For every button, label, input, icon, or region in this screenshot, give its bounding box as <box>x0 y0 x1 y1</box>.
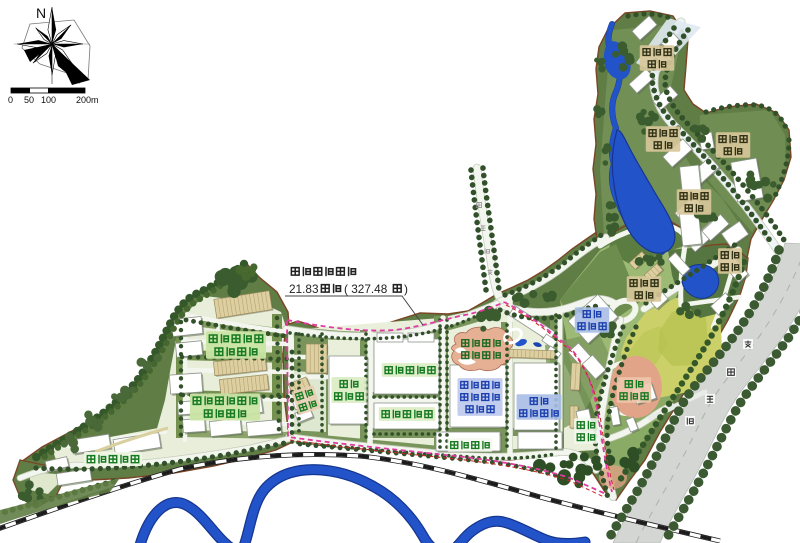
svg-text:0: 0 <box>8 95 13 105</box>
svg-text:21.83: 21.83 <box>289 282 319 296</box>
svg-text:50: 50 <box>24 95 34 105</box>
svg-text:( 327.48: ( 327.48 <box>344 282 388 296</box>
svg-text:): ) <box>404 282 408 296</box>
svg-text:100: 100 <box>41 95 56 105</box>
svg-text:N: N <box>36 5 46 21</box>
svg-text:200m: 200m <box>76 95 99 105</box>
